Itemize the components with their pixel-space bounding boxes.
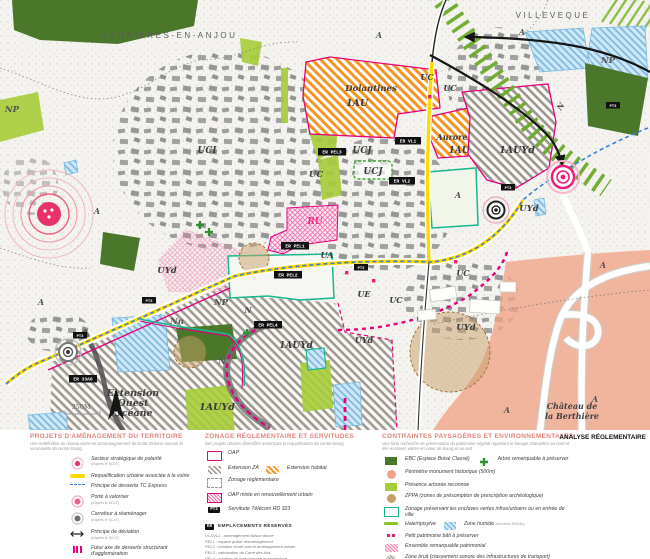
legend-item-tc-express: Principe de desserte TC Express <box>68 484 198 490</box>
svg-text:UCI: UCI <box>197 146 217 156</box>
legend-item-zonage-reglementaire: Zonage réglementaire <box>205 478 377 488</box>
legend-item-haie-humide: Haie/ripisylve Zone humide (données DREA… <box>382 522 574 530</box>
svg-text:A: A <box>503 405 510 415</box>
oap-mixte-icon <box>205 493 223 503</box>
extension-za-icon <box>205 466 223 474</box>
monument-historique-icon <box>382 470 400 479</box>
legend-item-deviation: Principe de déviation (d'après le SCoT) <box>68 530 198 542</box>
zonage-reglementaire-icon <box>205 478 223 488</box>
servitude-pt3-icon: PT3 <box>205 507 223 513</box>
futur-axe-icon <box>68 546 86 553</box>
svg-text:UYd: UYd <box>456 323 475 333</box>
svg-text:ER VL1: ER VL1 <box>400 139 417 145</box>
svg-text:A: A <box>93 206 100 216</box>
page-title: ANALYSE RÉGLEMENTAIRE <box>559 434 646 441</box>
svg-text:UC: UC <box>443 83 457 93</box>
svg-text:UC: UC <box>309 170 323 180</box>
legend-item-oap: OAP <box>205 451 377 461</box>
ebc-icon <box>382 457 400 465</box>
ucj-zoning-box: UCJ <box>354 161 392 179</box>
legend-title-contraintes: CONTRAINTES PAYSAGÈRES ET ENVIRONNEMENTA… <box>382 433 574 440</box>
svg-text:A: A <box>37 297 44 307</box>
label-verrieres-en-anjou: VERRIERES-EN-ANJOU <box>103 31 238 40</box>
legend-title-projets: PROJETS D'AMÉNAGEMENT DU TERRITOIRE <box>30 433 198 440</box>
legend-item-arboree: Présence arborée reconnue <box>382 483 574 491</box>
legend-item-requalification: Requalification urbaine associée à la vo… <box>68 474 198 480</box>
svg-text:PT3: PT3 <box>505 187 513 191</box>
svg-text:ER 33A6: ER 33A6 <box>73 377 93 383</box>
svg-text:ER PEL3: ER PEL3 <box>322 150 342 156</box>
legend-item-servitude: PT3 Servitude Télécom RD 323 <box>205 507 377 513</box>
svg-text:1AUYd: 1AUYd <box>279 341 314 351</box>
svg-text:NP: NP <box>213 298 229 308</box>
porte-a-valoriser-target <box>547 161 579 193</box>
legend-subtitle-contraintes: Une forte recherche de préservation du p… <box>382 441 574 452</box>
svg-text:1AUYd: 1AUYd <box>199 402 235 413</box>
legend-subtitle-projets: Une redéfinition du réseau viaire en acc… <box>30 441 198 452</box>
svg-text:1AU: 1AU <box>346 98 369 109</box>
svg-text:UCJ: UCJ <box>352 146 372 156</box>
enclave-verte-zone-2 <box>428 168 478 228</box>
svg-text:UYd: UYd <box>519 204 538 214</box>
zone-label-ucj-box: UCJ <box>363 167 383 177</box>
svg-text:1AU: 1AU <box>448 146 470 156</box>
requalification-icon <box>68 474 86 478</box>
legend-item-monument: Périmètre monument historique (500m) <box>382 470 574 479</box>
zppa-icon <box>382 494 400 503</box>
svg-text:UYd: UYd <box>355 335 374 345</box>
svg-text:UYd: UYd <box>157 266 176 276</box>
svg-text:PT3: PT3 <box>146 300 154 304</box>
svg-text:A: A <box>375 30 382 40</box>
legend-col-zonage: ZONAGE RÉGLEMENTAIRE ET SERVITUDES Des p… <box>205 433 377 559</box>
oap-icon <box>205 451 223 461</box>
ensemble-remarquable-icon <box>382 544 400 552</box>
svg-text:A: A <box>599 260 606 270</box>
legend-item-futur-axe: Futur axe de desserte structurant d'aggl… <box>68 546 198 558</box>
zone-bruit-icon <box>382 555 400 559</box>
legend-item-extensions: Extension ZA Extension habitat <box>205 466 377 474</box>
svg-text:UA: UA <box>321 250 334 260</box>
svg-text:ER PEL1: ER PEL1 <box>285 244 305 250</box>
carrefour-target-2 <box>55 339 81 365</box>
map-canvas: UCJ ER PEL3 ER VL1 ER VL2 ER PEL1 ER PEL… <box>0 0 650 432</box>
zone-humide-icon <box>441 522 459 530</box>
petit-patrimoine-icon <box>382 534 400 537</box>
legend-item-carrefour: Carrefour à réaménager (d'après le SCoT) <box>68 512 198 525</box>
label-chateau: Château de <box>547 401 598 411</box>
svg-text:N: N <box>114 411 119 417</box>
label-aurore: Aurore <box>436 132 468 142</box>
legend-item-ebc: EBC (Espace Boisé Classé) Arbre remarqua… <box>382 457 574 467</box>
legend-item-secteur-polarite: Secteur stratégique de polarité (d'après… <box>68 457 198 470</box>
legend-col-contraintes: CONTRAINTES PAYSAGÈRES ET ENVIRONNEMENTA… <box>382 433 574 559</box>
svg-text:UE: UE <box>357 289 371 299</box>
legend-item-ensemble-remarquable: Ensemble remarquable patrimonial <box>382 544 574 552</box>
svg-text:ER VL2: ER VL2 <box>394 179 411 185</box>
legend-item-zppa: ZPPA (zones de présomption de prescripti… <box>382 494 574 503</box>
secteur-polarite-icon <box>68 457 86 470</box>
svg-text:UC: UC <box>389 295 403 305</box>
zone-humide-enclave <box>306 348 326 370</box>
svg-text:PT3: PT3 <box>358 267 366 271</box>
legend-subtitle-zonage: Des projets urbains diversifiés annonçan… <box>205 441 377 446</box>
svg-text:UC: UC <box>420 72 434 82</box>
label-villeveque: VILLEVEQUE <box>516 11 591 20</box>
legend-item-enclaves: Zonage préservant les enclaves vertes in… <box>382 507 574 519</box>
svg-text:ER PEL2: ER PEL2 <box>278 273 298 279</box>
tc-express-icon <box>68 484 86 485</box>
label-dolantines: Dolantines <box>344 84 397 94</box>
svg-text:NP: NP <box>600 56 616 66</box>
extension-habitat-icon <box>264 466 282 474</box>
legend-item-zone-bruit: Zone bruit (classement sonore des infras… <box>382 555 574 559</box>
carrefour-icon <box>68 512 86 525</box>
enclaves-vertes-icon <box>382 507 400 517</box>
planning-map-page: UCJ ER PEL3 ER VL1 ER VL2 ER PEL1 ER PEL… <box>0 0 650 559</box>
carrefour-target-1 <box>483 197 509 223</box>
svg-text:350M: 350M <box>71 403 90 411</box>
er-legend-list: VL1/VL2 : aménagement liaison douce PEL1… <box>205 533 377 559</box>
svg-text:A: A <box>454 190 461 200</box>
svg-text:UC: UC <box>456 268 470 278</box>
er-legend-header: ER EMPLACEMENTS RÉSERVÉS <box>205 524 377 530</box>
svg-text:N: N <box>243 305 252 315</box>
svg-text:A: A <box>591 394 598 404</box>
svg-text:N: N <box>217 356 226 366</box>
legend: PROJETS D'AMÉNAGEMENT DU TERRITOIRE Une … <box>0 430 650 559</box>
er-tag-icon: ER <box>205 524 214 530</box>
legend-item-petit-patrimoine: Petit patrimoine bâti à préserver <box>382 534 574 540</box>
svg-text:PT3: PT3 <box>610 105 618 109</box>
legend-title-zonage: ZONAGE RÉGLEMENTAIRE ET SERVITUDES <box>205 433 377 440</box>
legend-item-oap-mixte: OAP mixte en renouvellement urbain <box>205 493 377 503</box>
svg-text:A: A <box>518 27 525 37</box>
deviation-arrow-icon <box>68 530 86 538</box>
haie-icon <box>382 522 400 525</box>
arbre-remarquable-icon <box>475 457 493 467</box>
svg-text:la Berthière: la Berthière <box>545 411 599 421</box>
svg-text:NP: NP <box>4 105 20 115</box>
svg-text:ER PEL4: ER PEL4 <box>258 323 278 329</box>
legend-col-projets: PROJETS D'AMÉNAGEMENT DU TERRITOIRE Une … <box>30 433 198 559</box>
svg-text:1AUYd: 1AUYd <box>499 145 535 156</box>
legend-item-porte-valoriser: Porte à valoriser (d'après le SCoT) <box>68 495 198 508</box>
porte-valoriser-icon <box>68 495 86 508</box>
svg-text:RU: RU <box>306 217 323 227</box>
svg-text:Nn: Nn <box>169 317 184 327</box>
svg-text:PT3: PT3 <box>77 335 85 339</box>
presence-arboree-icon <box>382 483 400 491</box>
